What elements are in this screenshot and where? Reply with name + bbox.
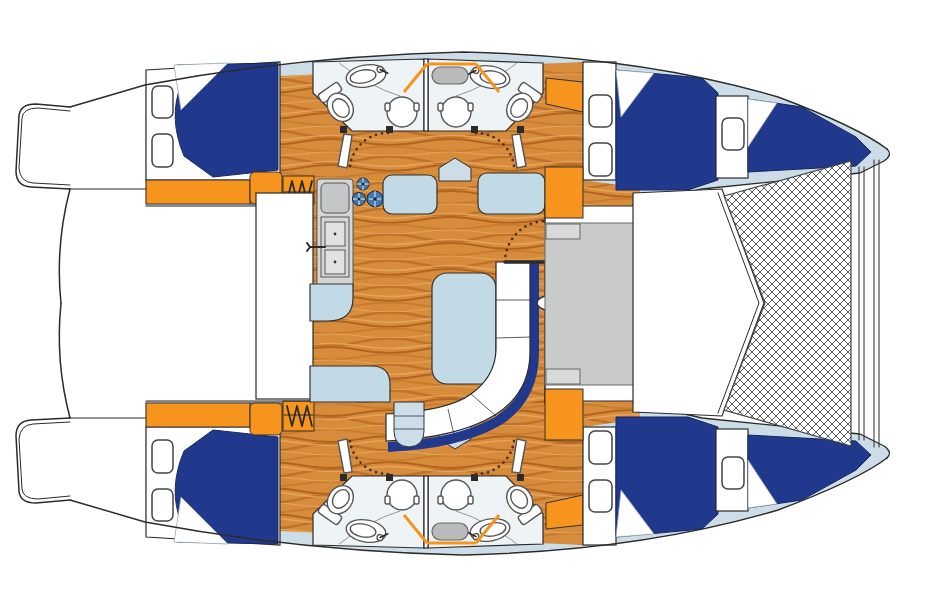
salon-cabinet [545,389,583,440]
hull-window [152,134,173,167]
forward-cockpit [545,223,635,385]
companionway-steps [394,402,424,447]
salon-bench [310,366,390,402]
catamaran-floorplan [0,0,927,609]
salon-seat [478,173,545,214]
salon-cabinet [545,167,583,218]
hull-window [722,118,744,150]
cockpit-step [546,369,580,384]
aft-cockpit-entry [256,193,313,399]
salon-table [432,273,496,384]
hull-window [589,143,612,176]
floorplan-canvas [0,0,927,609]
hull-window [589,95,612,127]
galley-sink [321,183,349,213]
hull-window [152,86,173,118]
deck-hatch [432,67,468,84]
cockpit-step [546,224,580,239]
salon-seat [383,175,437,214]
galley-seat [310,284,353,321]
head-divider-wall [424,59,428,131]
